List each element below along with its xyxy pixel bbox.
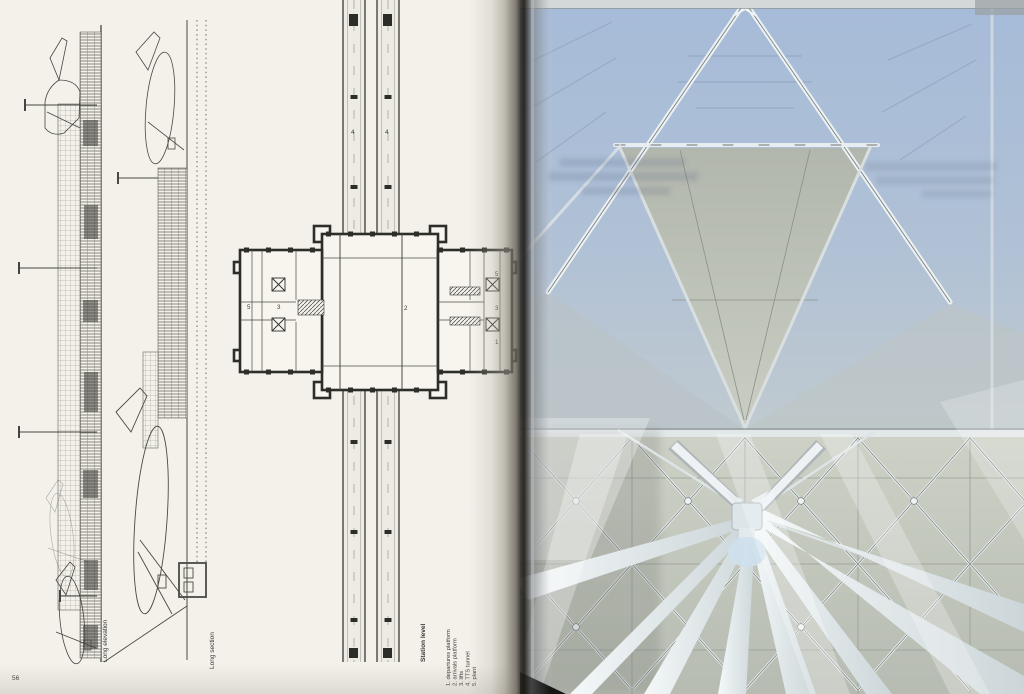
left-page: 4 4 <box>0 0 520 694</box>
building-section-band <box>158 168 187 418</box>
curl-highlight <box>531 0 534 694</box>
caption-long-section: Long section <box>209 632 216 669</box>
concourse-grid-band <box>58 104 80 610</box>
long-elevation-drawing <box>19 25 101 665</box>
ground-line <box>104 606 187 662</box>
plan-number-track-right: 4 <box>385 129 389 136</box>
left-page-gutter-shade <box>468 0 520 694</box>
right-page-photo <box>520 0 1024 694</box>
plan-number-concourse: 2 <box>404 305 408 312</box>
plan-number-left-plant: 5 <box>247 304 251 311</box>
plan-centre-body <box>322 234 438 390</box>
long-section-drawing <box>104 20 206 662</box>
top-right-shade <box>975 0 1024 15</box>
drawings-canvas: 4 4 <box>0 0 520 694</box>
left-page-bottom-shade <box>0 664 520 694</box>
caption-long-elevation: Long elevation <box>102 619 109 662</box>
photo-gutter-curl <box>520 0 554 694</box>
roof-photo-canvas <box>520 0 1024 694</box>
caption-station-level: Station level <box>420 624 427 662</box>
roof-shell-upper <box>520 0 1024 436</box>
section-aircraft-top <box>136 32 184 165</box>
plan-number-left-lifts: 3 <box>277 304 281 311</box>
detail-box <box>179 563 206 597</box>
plan-number-track-left: 4 <box>351 129 355 136</box>
page-top-margin <box>520 0 1024 8</box>
section-marker <box>118 172 158 184</box>
book-spread-scan: 4 4 <box>0 0 1024 694</box>
